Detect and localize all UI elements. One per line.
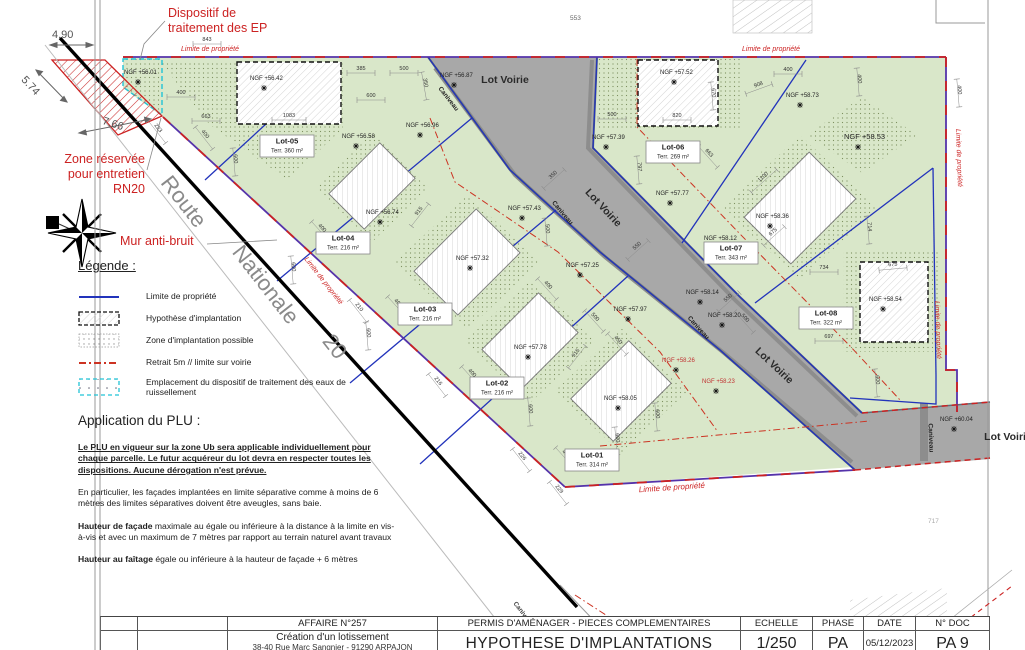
tree-symbol-icon (673, 367, 679, 373)
plu-p4-rest: égale ou inférieure à la hauteur de faça… (153, 554, 358, 564)
project-cell: Création d'un lotissement 38-40 Rue Marc… (228, 631, 438, 650)
title-block: AFFAIRE N°257 PERMIS D'AMÉNAGER - PIECES… (100, 616, 990, 650)
tree-symbol-icon (951, 426, 957, 432)
date-header: DATE (864, 617, 916, 631)
lot-name: Lot-08 (815, 309, 838, 318)
blue-line-icon (78, 289, 120, 304)
doc-title: HYPOTHESE D'IMPLANTATIONS (438, 631, 741, 650)
title-block-cell-empty (138, 631, 228, 650)
ngf-label: NGF +58.23 (702, 379, 736, 385)
dim-label: 600 (614, 433, 621, 443)
echelle-header: ECHELLE (741, 617, 813, 631)
lot-name: Lot-01 (581, 451, 604, 460)
annotation-zone-reservee: Zone réservée (64, 152, 145, 166)
dim-label: 600 (366, 93, 375, 99)
lot-area: Terr. 216 m² (481, 391, 513, 397)
lot-label-lot-08: Lot-08Terr. 322 m² (799, 307, 853, 329)
plu-paragraph-3: Hauteur de façade maximale au égale ou i… (78, 521, 396, 544)
dim-label: 714 (866, 222, 873, 232)
dim-label: 797 (636, 162, 643, 172)
limite-propriete-label: Limite de propriété (954, 129, 963, 187)
plu-paragraph-1: Le PLU en vigueur sur la zone Ub sera ap… (78, 442, 396, 476)
dim-label: 600 (527, 404, 534, 414)
dim-label: 400 (176, 90, 185, 96)
dim-label: 600 (874, 375, 881, 385)
doc-header: N° DOC (916, 617, 990, 631)
ngf-label: NGF +58.26 (662, 358, 696, 364)
phase-header: PHASE (813, 617, 864, 631)
dim-4-90: 4.90 (52, 29, 73, 41)
ngf-label: NGF +57.52 (660, 70, 694, 76)
lot-label-lot-01: Lot-01Terr. 314 m² (565, 449, 619, 471)
doc-value: PA 9 (916, 631, 990, 650)
lot-label-lot-06: Lot-06Terr. 269 m² (646, 141, 700, 163)
lot-label-lot-05: Lot-05Terr. 360 m² (260, 135, 314, 157)
tree-symbol-icon (615, 405, 621, 411)
dim-label: 1083 (283, 113, 295, 119)
tree-symbol-icon (697, 299, 703, 305)
dim-label: 843 (202, 37, 211, 43)
ngf-label: NGF +58.53 (844, 132, 885, 141)
ngf-label: NGF +56.42 (250, 76, 284, 82)
tree-symbol-icon (713, 388, 719, 394)
lot-area: Terr. 343 m² (715, 256, 747, 262)
lot-name: Lot-02 (486, 379, 509, 388)
dim-tick (163, 141, 168, 145)
ngf-label: NGF +57.77 (656, 191, 690, 197)
dim-tick (564, 502, 569, 506)
annotation-zone-reservee: pour entretien (68, 167, 145, 181)
lot-label-lot-07: Lot-07Terr. 343 m² (704, 242, 758, 264)
dim-label: 663 (201, 114, 210, 120)
dim-label: 223 (153, 123, 163, 134)
legend-item-retrait: Retrait 5m // limite sur voirie (78, 355, 398, 370)
project-address: 38-40 Rue Marc Sangnier - 91290 ARPAJON (253, 643, 413, 650)
ngf-label: NGF +58.05 (604, 396, 638, 402)
dim-label: 400 (783, 67, 792, 73)
dim-label: 600 (654, 409, 661, 419)
caniveau-label: Caniveau (926, 423, 934, 452)
tree-symbol-icon (451, 82, 457, 88)
plu-p3-lead: Hauteur de façade (78, 521, 153, 531)
annotation-zone-reservee: RN20 (113, 182, 145, 196)
limite-propriete-label: Limite de propriété (742, 46, 800, 53)
title-block-cell-empty (101, 617, 138, 631)
title-block-cell-empty (101, 631, 138, 650)
ngf-label: NGF +58.20 (708, 313, 742, 319)
ngf-label: NGF +56.96 (406, 123, 440, 129)
ngf-label: NGF +58.54 (869, 297, 903, 303)
legend-item-zone: Zone d'implantation possible (78, 333, 398, 348)
dots-box-icon (78, 333, 120, 348)
tree-symbol-icon (261, 85, 267, 91)
dim-tick (443, 394, 448, 398)
ngf-label: NGF +57.97 (614, 307, 648, 313)
lot-area: Terr. 216 m² (327, 246, 359, 252)
plu-p4-lead: Hauteur au faîtage (78, 554, 153, 564)
lot-name: Lot-05 (276, 137, 299, 146)
lot-area: Terr. 360 m² (271, 149, 303, 155)
title-block-cell-empty (138, 617, 228, 631)
route-nationale-label: Route (156, 171, 212, 233)
dim-label: 500 (544, 224, 551, 234)
ngf-label: NGF +57.32 (456, 256, 490, 262)
ngf-label: NGF +57.39 (592, 135, 626, 141)
hatch-box-icon (78, 311, 120, 326)
lot-name: Lot-06 (662, 143, 685, 152)
ngf-label: NGF +58.12 (704, 236, 738, 242)
site-plan-page: 8434006631083385500350600400600400600400… (0, 0, 1025, 650)
ngf-label: NGF +56.74 (366, 210, 400, 216)
tree-symbol-icon (671, 79, 677, 85)
tree-symbol-icon (797, 102, 803, 108)
limite-propriete-label: Limite de propriété (181, 46, 239, 53)
permis-header: PERMIS D'AMÉNAGER - PIECES COMPLEMENTAIR… (438, 617, 741, 631)
dim-tick (547, 480, 552, 484)
legend: Légende : Limite de propriété Hypothèse … (78, 258, 398, 404)
dim-label: 500 (607, 112, 616, 118)
tree-symbol-icon (577, 272, 583, 278)
dim-label: 820 (672, 113, 681, 119)
tree-symbol-icon (880, 306, 886, 312)
tree-symbol-icon (417, 132, 423, 138)
legend-item-limite: Limite de propriété (78, 289, 398, 304)
dim-tick (954, 79, 960, 80)
lot-label-lot-02: Lot-02Terr. 216 m² (470, 377, 524, 399)
legend-title: Légende : (78, 258, 398, 273)
dim-label: 400 (856, 74, 863, 84)
lot-area: Terr. 216 m² (409, 317, 441, 323)
annotation-dispositif-ep: Dispositif de (168, 6, 236, 20)
north-marker (46, 216, 59, 229)
dim-label: 670 (710, 88, 717, 98)
dim-tick (426, 372, 431, 376)
dim-tick (527, 469, 532, 473)
lot-area: Terr. 314 m² (576, 463, 608, 469)
affaire-header: AFFAIRE N°257 (228, 617, 438, 631)
dim-label: 675 (888, 262, 898, 269)
tree-symbol-icon (855, 144, 861, 150)
dim-label: 600 (232, 154, 239, 164)
dim-tick (510, 447, 515, 451)
tree-symbol-icon (525, 354, 531, 360)
red-dashdot-icon (78, 355, 120, 370)
tree-symbol-icon (377, 219, 383, 225)
annotation-mur-anti-bruit: Mur anti-bruit (120, 234, 194, 248)
tree-symbol-icon (625, 316, 631, 322)
project-title: Création d'un lotissement (276, 632, 389, 643)
plu-section: Application du PLU : Le PLU en vigueur s… (78, 413, 396, 577)
lot-name: Lot-03 (414, 305, 437, 314)
tree-symbol-icon (603, 144, 609, 150)
tree-symbol-icon (767, 223, 773, 229)
echelle-value: 1/250 (741, 631, 813, 650)
dim-tick (956, 107, 962, 108)
legend-item-hypothese: Hypothèse d'implantation (78, 311, 398, 326)
offsite-building-hatch (733, 0, 812, 33)
lot-label-lot-04: Lot-04Terr. 216 m² (316, 232, 370, 254)
ngf-label: NGF +60.04 (940, 417, 974, 423)
dim-label: 226 (517, 451, 527, 462)
dim-5-74: 5.74 (19, 74, 42, 98)
dim-label: 500 (399, 66, 408, 72)
dim-label: 400 (956, 85, 963, 95)
dim-label: 385 (356, 66, 365, 72)
date-value: 05/12/2023 (864, 631, 916, 650)
ngf-label: NGF +58.14 (686, 290, 720, 296)
lot-name: Lot-07 (720, 244, 743, 253)
tree-symbol-icon (719, 322, 725, 328)
lot-voirie-label: Lot Voirie (481, 74, 529, 86)
dim-label: 734 (819, 265, 828, 271)
lot-voirie-label: Lot Voirie (984, 431, 1025, 443)
plu-paragraph-2: En particulier, les façades implantées e… (78, 487, 396, 510)
tree-symbol-icon (519, 215, 525, 221)
ref-553: 553 (570, 15, 581, 22)
compass-icon (46, 199, 116, 267)
dim-tick (288, 256, 294, 257)
tree-symbol-icon (135, 79, 141, 85)
dim-label: 216 (433, 376, 443, 387)
dim-label: 697 (824, 334, 833, 340)
tree-symbol-icon (467, 265, 473, 271)
ngf-label: NGF +56.87 (440, 73, 474, 79)
ngf-label: NGF +57.43 (508, 206, 542, 212)
phase-value: PA (813, 631, 864, 650)
annotation-dispositif-ep: traitement des EP (168, 21, 267, 35)
lot-name: Lot-04 (332, 234, 355, 243)
plu-title: Application du PLU : (78, 413, 396, 428)
ngf-label: NGF +57.78 (514, 345, 548, 351)
ngf-label: NGF +58.73 (786, 93, 820, 99)
ngf-label: NGF +58.36 (756, 214, 790, 220)
tree-symbol-icon (667, 200, 673, 206)
ngf-label: NGF +56.58 (342, 134, 376, 140)
ngf-label: NGF +56.01 (124, 70, 158, 76)
ref-717: 717 (928, 518, 939, 525)
lot-area: Terr. 269 m² (657, 155, 689, 161)
lot-label-lot-03: Lot-03Terr. 216 m² (398, 303, 452, 325)
ngf-label: NGF +57.25 (566, 263, 600, 269)
lot-area: Terr. 322 m² (810, 321, 842, 327)
cyan-box-icon (78, 377, 120, 397)
plu-paragraph-4: Hauteur au faîtage égale ou inférieure à… (78, 554, 396, 565)
tree-symbol-icon (353, 143, 359, 149)
legend-item-ep: Emplacement du dispositif de traitement … (78, 377, 398, 397)
